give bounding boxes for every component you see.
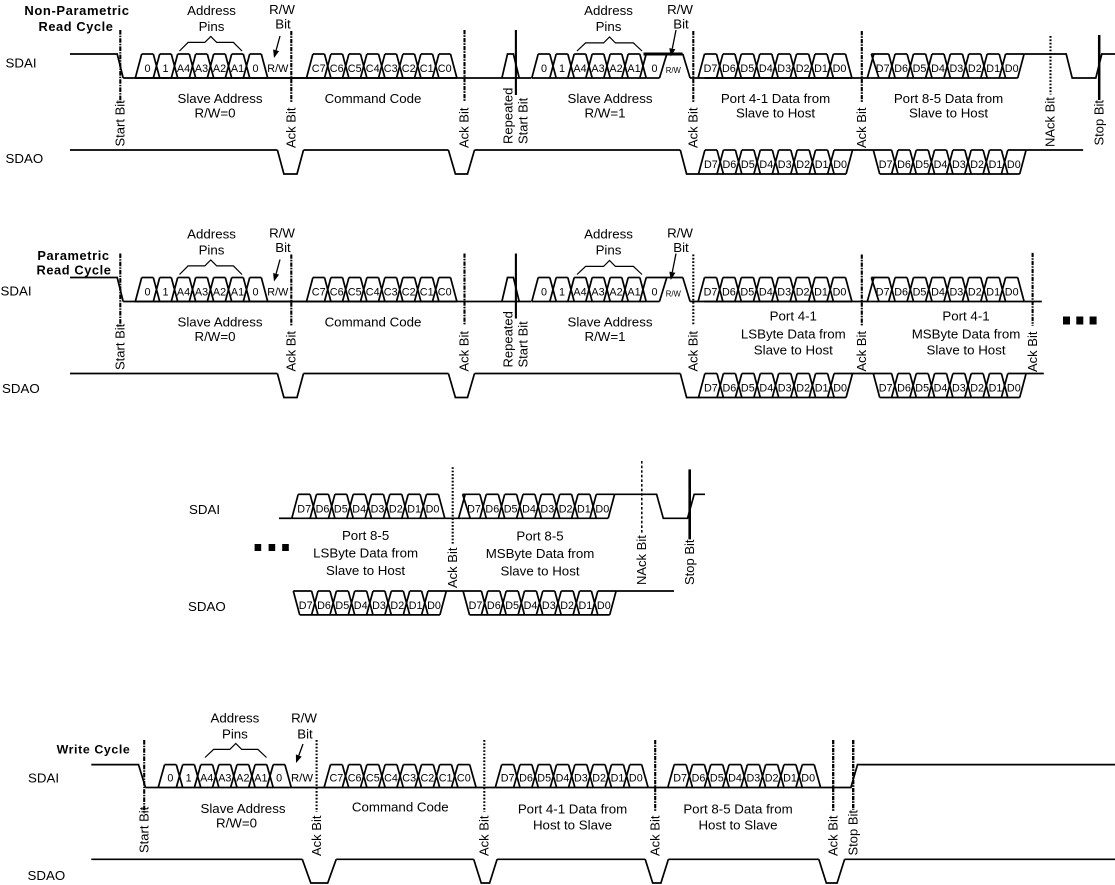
svg-text:C3: C3 — [384, 287, 398, 299]
svg-text:Port 8-5 Data from: Port 8-5 Data from — [894, 91, 1003, 106]
svg-text:D6: D6 — [722, 383, 736, 395]
svg-text:D4: D4 — [728, 773, 742, 785]
svg-text:D2: D2 — [560, 600, 574, 612]
svg-text:SDAI: SDAI — [6, 56, 37, 71]
svg-text:Host to Slave: Host to Slave — [698, 818, 777, 833]
svg-text:C1: C1 — [420, 63, 434, 75]
svg-text:Ack Bit: Ack Bit — [647, 815, 662, 856]
svg-text:D5: D5 — [741, 383, 755, 395]
svg-text:D5: D5 — [505, 600, 519, 612]
svg-text:A1: A1 — [231, 287, 244, 299]
svg-text:D5: D5 — [913, 63, 927, 75]
svg-text:A1: A1 — [627, 63, 640, 75]
svg-text:SDAI: SDAI — [28, 771, 59, 786]
svg-text:0: 0 — [144, 63, 150, 75]
svg-text:D1: D1 — [814, 63, 828, 75]
svg-text:D4: D4 — [934, 383, 948, 395]
svg-text:Command Code: Command Code — [352, 800, 449, 815]
svg-text:Ack Bit: Ack Bit — [854, 107, 869, 148]
svg-text:R/W: R/W — [667, 226, 693, 241]
svg-text:Ack Bit: Ack Bit — [284, 107, 299, 148]
svg-text:Pins: Pins — [596, 243, 622, 258]
svg-text:C1: C1 — [439, 773, 453, 785]
svg-text:Ack Bit: Ack Bit — [686, 331, 701, 372]
svg-text:Address: Address — [187, 227, 236, 242]
svg-text:D5: D5 — [740, 287, 754, 299]
svg-text:MSByte Data from: MSByte Data from — [912, 326, 1021, 341]
svg-text:D2: D2 — [592, 773, 606, 785]
svg-text:Bit: Bit — [673, 17, 689, 32]
svg-text:R/W: R/W — [666, 289, 682, 298]
svg-text:0: 0 — [541, 63, 547, 75]
svg-text:Port 4-1 Data from: Port 4-1 Data from — [721, 91, 830, 106]
svg-text:Slave to Host: Slave to Host — [500, 564, 579, 579]
svg-text:C0: C0 — [457, 773, 471, 785]
svg-text:A4: A4 — [177, 287, 190, 299]
svg-text:Ack Bit: Ack Bit — [445, 547, 460, 588]
svg-text:LSByte Data from: LSByte Data from — [741, 326, 846, 341]
svg-text:D5: D5 — [504, 503, 518, 515]
svg-text:C4: C4 — [384, 773, 398, 785]
svg-text:D6: D6 — [894, 287, 908, 299]
svg-text:D1: D1 — [989, 383, 1003, 395]
svg-text:NAck Bit: NAck Bit — [634, 535, 649, 585]
svg-text:D2: D2 — [796, 63, 810, 75]
svg-text:Ack Bit: Ack Bit — [854, 331, 869, 372]
svg-text:D2: D2 — [390, 600, 404, 612]
svg-text:A2: A2 — [213, 63, 226, 75]
svg-text:D6: D6 — [519, 773, 533, 785]
svg-text:D6: D6 — [485, 503, 499, 515]
svg-text:A3: A3 — [591, 287, 604, 299]
svg-text:D1: D1 — [611, 773, 625, 785]
svg-text:Non-Parametric: Non-Parametric — [24, 3, 129, 18]
svg-text:1: 1 — [559, 63, 565, 75]
svg-text:MSByte Data from: MSByte Data from — [486, 546, 595, 561]
svg-text:R/W: R/W — [269, 226, 295, 241]
svg-text:D0: D0 — [1005, 287, 1019, 299]
svg-text:D0: D0 — [1007, 383, 1021, 395]
svg-text:D3: D3 — [746, 773, 760, 785]
svg-text:D2: D2 — [796, 159, 810, 171]
svg-text:Slave to Host: Slave to Host — [909, 106, 988, 121]
svg-text:Read Cycle: Read Cycle — [39, 19, 114, 34]
svg-text:Port 8-5: Port 8-5 — [342, 528, 389, 543]
svg-text:D4: D4 — [556, 773, 570, 785]
svg-text:Address: Address — [187, 3, 236, 18]
svg-text:D6: D6 — [692, 773, 706, 785]
svg-text:Ack Bit: Ack Bit — [284, 331, 299, 372]
svg-text:D1: D1 — [815, 159, 829, 171]
svg-text:D6: D6 — [487, 600, 501, 612]
svg-text:0: 0 — [167, 773, 173, 785]
svg-text:Write Cycle: Write Cycle — [57, 743, 131, 757]
svg-text:C6: C6 — [330, 287, 344, 299]
svg-text:D5: D5 — [334, 503, 348, 515]
svg-text:A3: A3 — [218, 773, 231, 785]
svg-text:C6: C6 — [348, 773, 362, 785]
svg-text:D7: D7 — [879, 383, 893, 395]
svg-text:R/W=1: R/W=1 — [584, 329, 625, 344]
svg-text:Ack Bit: Ack Bit — [1025, 331, 1040, 372]
svg-text:D3: D3 — [952, 159, 966, 171]
svg-text:Address: Address — [584, 227, 633, 242]
svg-text:D4: D4 — [759, 63, 773, 75]
svg-text:Stop Bit: Stop Bit — [845, 810, 860, 856]
svg-text:D6: D6 — [316, 503, 330, 515]
svg-text:D7: D7 — [673, 773, 687, 785]
svg-text:0: 0 — [144, 287, 150, 299]
svg-text:Start Bit: Start Bit — [113, 323, 128, 370]
svg-text:A4: A4 — [573, 287, 586, 299]
svg-text:C7: C7 — [312, 287, 326, 299]
svg-text:SDAI: SDAI — [189, 502, 220, 517]
svg-text:Pins: Pins — [199, 243, 225, 258]
svg-text:LSByte Data from: LSByte Data from — [313, 545, 418, 560]
svg-text:Start Bit: Start Bit — [113, 100, 128, 147]
svg-text:D4: D4 — [931, 287, 945, 299]
svg-text:D1: D1 — [578, 600, 592, 612]
svg-text:D6: D6 — [894, 63, 908, 75]
svg-text:D5: D5 — [710, 773, 724, 785]
svg-text:D4: D4 — [522, 503, 536, 515]
svg-text:C5: C5 — [348, 287, 362, 299]
svg-text:Address: Address — [211, 711, 260, 726]
svg-text:R/W: R/W — [269, 2, 295, 17]
svg-text:Start Bit: Start Bit — [516, 97, 531, 144]
svg-text:D7: D7 — [704, 287, 718, 299]
svg-text:D6: D6 — [897, 159, 911, 171]
svg-text:Ack Bit: Ack Bit — [457, 107, 472, 148]
svg-text:D0: D0 — [629, 773, 643, 785]
svg-text:A4: A4 — [200, 773, 213, 785]
svg-text:Port 4-1: Port 4-1 — [942, 309, 989, 324]
svg-text:C0: C0 — [438, 63, 452, 75]
svg-text:R/W=0: R/W=0 — [216, 815, 257, 830]
svg-text:D4: D4 — [759, 383, 773, 395]
svg-text:Host to Slave: Host to Slave — [533, 818, 612, 833]
svg-text:Bit: Bit — [275, 17, 291, 32]
svg-text:D0: D0 — [1007, 159, 1021, 171]
svg-text:D3: D3 — [949, 63, 963, 75]
svg-text:SDAI: SDAI — [1, 284, 32, 299]
svg-text:Stop Bit: Stop Bit — [682, 539, 697, 585]
svg-text:A1: A1 — [627, 287, 640, 299]
svg-text:D7: D7 — [501, 773, 515, 785]
svg-text:Start Bit: Start Bit — [516, 321, 531, 368]
svg-text:D5: D5 — [740, 63, 754, 75]
svg-text:D7: D7 — [297, 503, 311, 515]
svg-text:Slave Address: Slave Address — [177, 91, 262, 106]
svg-text:A2: A2 — [213, 287, 226, 299]
svg-text:C0: C0 — [438, 287, 452, 299]
svg-text:D7: D7 — [467, 503, 481, 515]
svg-text:D3: D3 — [371, 503, 385, 515]
svg-text:SDAO: SDAO — [188, 599, 226, 614]
svg-text:Pins: Pins — [222, 727, 248, 742]
svg-text:0: 0 — [541, 287, 547, 299]
svg-text:D5: D5 — [913, 287, 927, 299]
svg-text:Ack Bit: Ack Bit — [457, 331, 472, 372]
svg-text:Slave to Host: Slave to Host — [326, 563, 405, 578]
svg-text:A2: A2 — [609, 63, 622, 75]
svg-text:A4: A4 — [177, 63, 190, 75]
svg-text:D4: D4 — [354, 600, 368, 612]
svg-text:C7: C7 — [329, 773, 343, 785]
svg-text:Slave Address: Slave Address — [200, 801, 285, 816]
svg-text:Bit: Bit — [673, 240, 689, 255]
svg-text:Start Bit: Start Bit — [136, 806, 151, 853]
svg-text:D3: D3 — [574, 773, 588, 785]
svg-text:Port 4-1: Port 4-1 — [770, 309, 817, 324]
svg-text:Ack Bit: Ack Bit — [477, 815, 492, 856]
svg-text:NAck Bit: NAck Bit — [1043, 97, 1058, 147]
svg-text:A3: A3 — [195, 63, 208, 75]
svg-text:A1: A1 — [254, 773, 267, 785]
svg-text:D1: D1 — [986, 287, 1000, 299]
svg-text:0: 0 — [276, 773, 282, 785]
svg-text:D0: D0 — [833, 63, 847, 75]
svg-text:D7: D7 — [876, 63, 890, 75]
svg-text:D4: D4 — [352, 503, 366, 515]
svg-text:Slave Address: Slave Address — [567, 91, 652, 106]
svg-text:D4: D4 — [759, 287, 773, 299]
svg-text:C3: C3 — [402, 773, 416, 785]
svg-text:D1: D1 — [989, 159, 1003, 171]
svg-text:R/W: R/W — [291, 711, 317, 726]
svg-text:Repeated: Repeated — [501, 311, 516, 367]
svg-text:Pins: Pins — [596, 19, 622, 34]
svg-text:Parametric: Parametric — [37, 248, 109, 263]
svg-text:SDAO: SDAO — [2, 381, 40, 396]
svg-text:D5: D5 — [915, 159, 929, 171]
svg-text:Address: Address — [584, 3, 633, 18]
svg-text:D7: D7 — [879, 159, 893, 171]
svg-text:C1: C1 — [420, 287, 434, 299]
svg-text:D4: D4 — [759, 159, 773, 171]
svg-text:D2: D2 — [389, 503, 403, 515]
svg-text:Slave to Host: Slave to Host — [736, 106, 815, 121]
svg-text:R/W=0: R/W=0 — [194, 329, 235, 344]
svg-text:D3: D3 — [777, 63, 791, 75]
svg-text:D4: D4 — [524, 600, 538, 612]
svg-text:D6: D6 — [722, 159, 736, 171]
svg-text:D7: D7 — [704, 159, 718, 171]
svg-text:D3: D3 — [542, 600, 556, 612]
svg-text:Port 8-5 Data from: Port 8-5 Data from — [683, 802, 792, 817]
svg-text:0: 0 — [651, 63, 657, 75]
svg-text:Slave Address: Slave Address — [177, 315, 262, 330]
svg-text:D5: D5 — [741, 159, 755, 171]
svg-text:R/W: R/W — [267, 63, 289, 75]
svg-text:C3: C3 — [384, 63, 398, 75]
svg-text:R/W=0: R/W=0 — [194, 106, 235, 121]
svg-text:Port 4-1 Data from: Port 4-1 Data from — [518, 802, 627, 817]
svg-text:D7: D7 — [704, 383, 718, 395]
svg-text:Ack Bit: Ack Bit — [309, 815, 324, 856]
svg-text:Port 8-5: Port 8-5 — [516, 529, 563, 544]
svg-text:D2: D2 — [968, 287, 982, 299]
svg-text:C2: C2 — [402, 63, 416, 75]
svg-text:SDAO: SDAO — [6, 151, 44, 166]
svg-text:SDAO: SDAO — [28, 868, 66, 883]
svg-text:D2: D2 — [796, 383, 810, 395]
svg-text:D6: D6 — [317, 600, 331, 612]
svg-text:D3: D3 — [778, 159, 792, 171]
svg-text:D3: D3 — [540, 503, 554, 515]
svg-text:D0: D0 — [833, 159, 847, 171]
svg-text:0: 0 — [651, 286, 657, 298]
svg-text:R/W: R/W — [267, 286, 289, 298]
svg-text:Repeated: Repeated — [501, 88, 516, 144]
svg-text:C4: C4 — [366, 287, 380, 299]
svg-text:1: 1 — [162, 287, 168, 299]
svg-text:Bit: Bit — [275, 240, 291, 255]
svg-text:D0: D0 — [801, 773, 815, 785]
svg-text:C4: C4 — [366, 63, 380, 75]
svg-text:D1: D1 — [409, 600, 423, 612]
svg-text:D4: D4 — [931, 63, 945, 75]
svg-text:Slave to Host: Slave to Host — [926, 342, 1005, 357]
svg-text:A4: A4 — [573, 63, 586, 75]
svg-text:D1: D1 — [407, 503, 421, 515]
svg-text:D3: D3 — [952, 383, 966, 395]
svg-text:D0: D0 — [427, 600, 441, 612]
svg-text:1: 1 — [162, 63, 168, 75]
svg-text:1: 1 — [186, 773, 192, 785]
svg-text:D0: D0 — [426, 503, 440, 515]
svg-text:D6: D6 — [722, 287, 736, 299]
svg-text:D2: D2 — [970, 159, 984, 171]
svg-text:D4: D4 — [934, 159, 948, 171]
svg-text:A3: A3 — [195, 287, 208, 299]
svg-text:D6: D6 — [722, 63, 736, 75]
svg-text:D2: D2 — [970, 383, 984, 395]
svg-text:C5: C5 — [348, 63, 362, 75]
svg-text:A2: A2 — [236, 773, 249, 785]
svg-text:D0: D0 — [595, 503, 609, 515]
svg-text:D3: D3 — [777, 287, 791, 299]
svg-text:D1: D1 — [986, 63, 1000, 75]
svg-text:D1: D1 — [815, 383, 829, 395]
svg-text:Ack Bit: Ack Bit — [686, 107, 701, 148]
svg-text:D7: D7 — [704, 63, 718, 75]
svg-text:D7: D7 — [469, 600, 483, 612]
svg-text:C2: C2 — [402, 287, 416, 299]
svg-text:Read Cycle: Read Cycle — [37, 262, 112, 277]
svg-text:D1: D1 — [814, 287, 828, 299]
svg-text:A3: A3 — [591, 63, 604, 75]
svg-text:D0: D0 — [833, 287, 847, 299]
svg-text:D1: D1 — [783, 773, 797, 785]
svg-text:Ack Bit: Ack Bit — [825, 815, 840, 856]
svg-text:D3: D3 — [778, 383, 792, 395]
svg-text:R/W: R/W — [666, 66, 682, 75]
svg-text:D2: D2 — [796, 287, 810, 299]
svg-text:D5: D5 — [915, 383, 929, 395]
svg-text:D3: D3 — [949, 287, 963, 299]
svg-text:D7: D7 — [876, 287, 890, 299]
svg-text:R/W=1: R/W=1 — [584, 106, 625, 121]
svg-text:D0: D0 — [597, 600, 611, 612]
svg-text:D0: D0 — [1005, 63, 1019, 75]
svg-text:D2: D2 — [559, 503, 573, 515]
svg-text:D2: D2 — [765, 773, 779, 785]
svg-text:Command Code: Command Code — [325, 315, 422, 330]
svg-text:Bit: Bit — [297, 727, 313, 742]
svg-text:A1: A1 — [231, 63, 244, 75]
svg-text:Command Code: Command Code — [325, 91, 422, 106]
svg-text:R/W: R/W — [667, 2, 693, 17]
svg-text:Stop Bit: Stop Bit — [1091, 100, 1106, 146]
svg-text:A2: A2 — [609, 287, 622, 299]
svg-text:D6: D6 — [897, 383, 911, 395]
svg-text:R/W: R/W — [291, 772, 313, 784]
svg-text:0: 0 — [252, 63, 258, 75]
svg-text:Slave to Host: Slave to Host — [754, 342, 833, 357]
svg-text:D1: D1 — [577, 503, 591, 515]
svg-text:D7: D7 — [299, 600, 313, 612]
svg-text:Slave Address: Slave Address — [567, 315, 652, 330]
svg-text:C2: C2 — [420, 773, 434, 785]
svg-text:C6: C6 — [330, 63, 344, 75]
svg-text:C7: C7 — [312, 63, 326, 75]
svg-text:D3: D3 — [372, 600, 386, 612]
svg-text:D2: D2 — [968, 63, 982, 75]
svg-text:Pins: Pins — [199, 19, 225, 34]
svg-text:1: 1 — [559, 287, 565, 299]
svg-text:0: 0 — [252, 287, 258, 299]
svg-text:C5: C5 — [366, 773, 380, 785]
svg-text:D0: D0 — [833, 383, 847, 395]
svg-text:D5: D5 — [335, 600, 349, 612]
svg-text:D5: D5 — [537, 773, 551, 785]
